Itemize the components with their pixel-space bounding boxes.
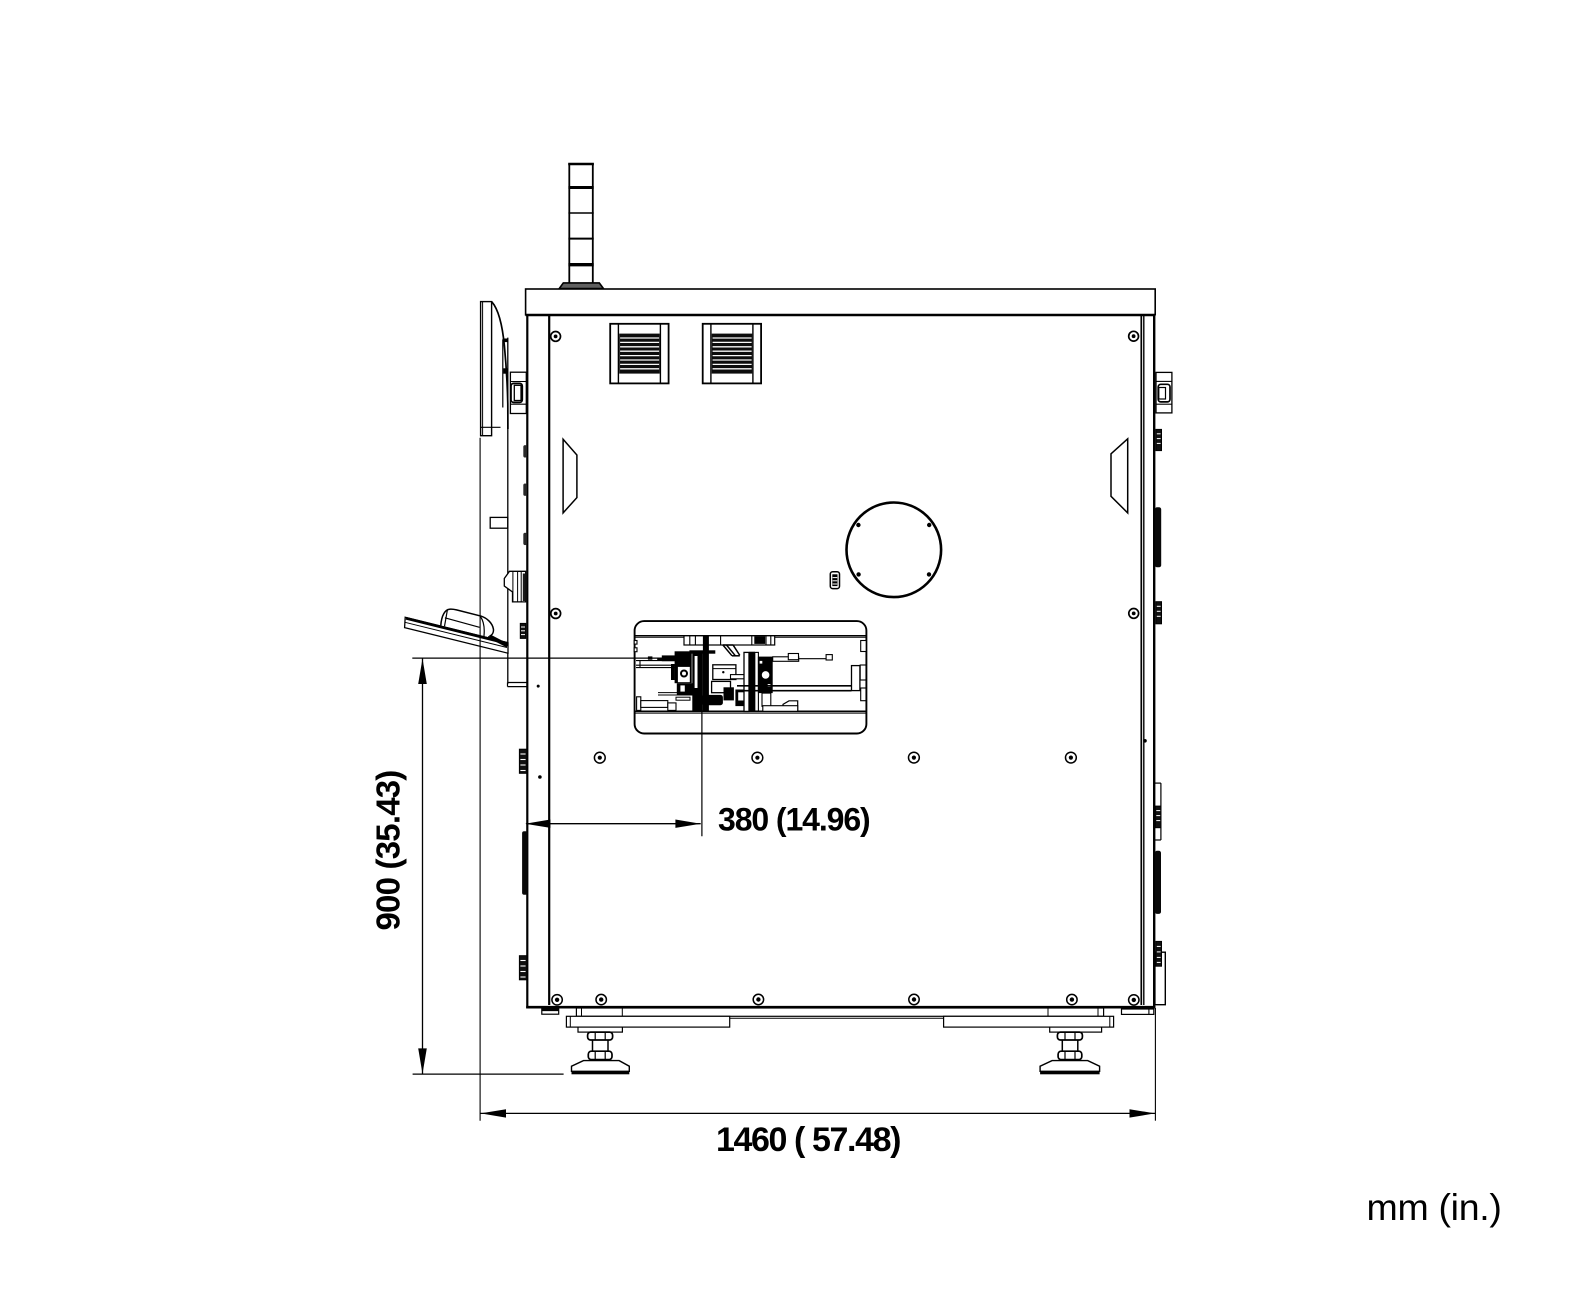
svg-text:1460 ( 57.48): 1460 ( 57.48)	[716, 1121, 900, 1159]
svg-text:380 (14.96): 380 (14.96)	[718, 802, 870, 838]
svg-text:mm (in.): mm (in.)	[1367, 1186, 1502, 1228]
svg-text:900 (35.43): 900 (35.43)	[370, 771, 407, 931]
